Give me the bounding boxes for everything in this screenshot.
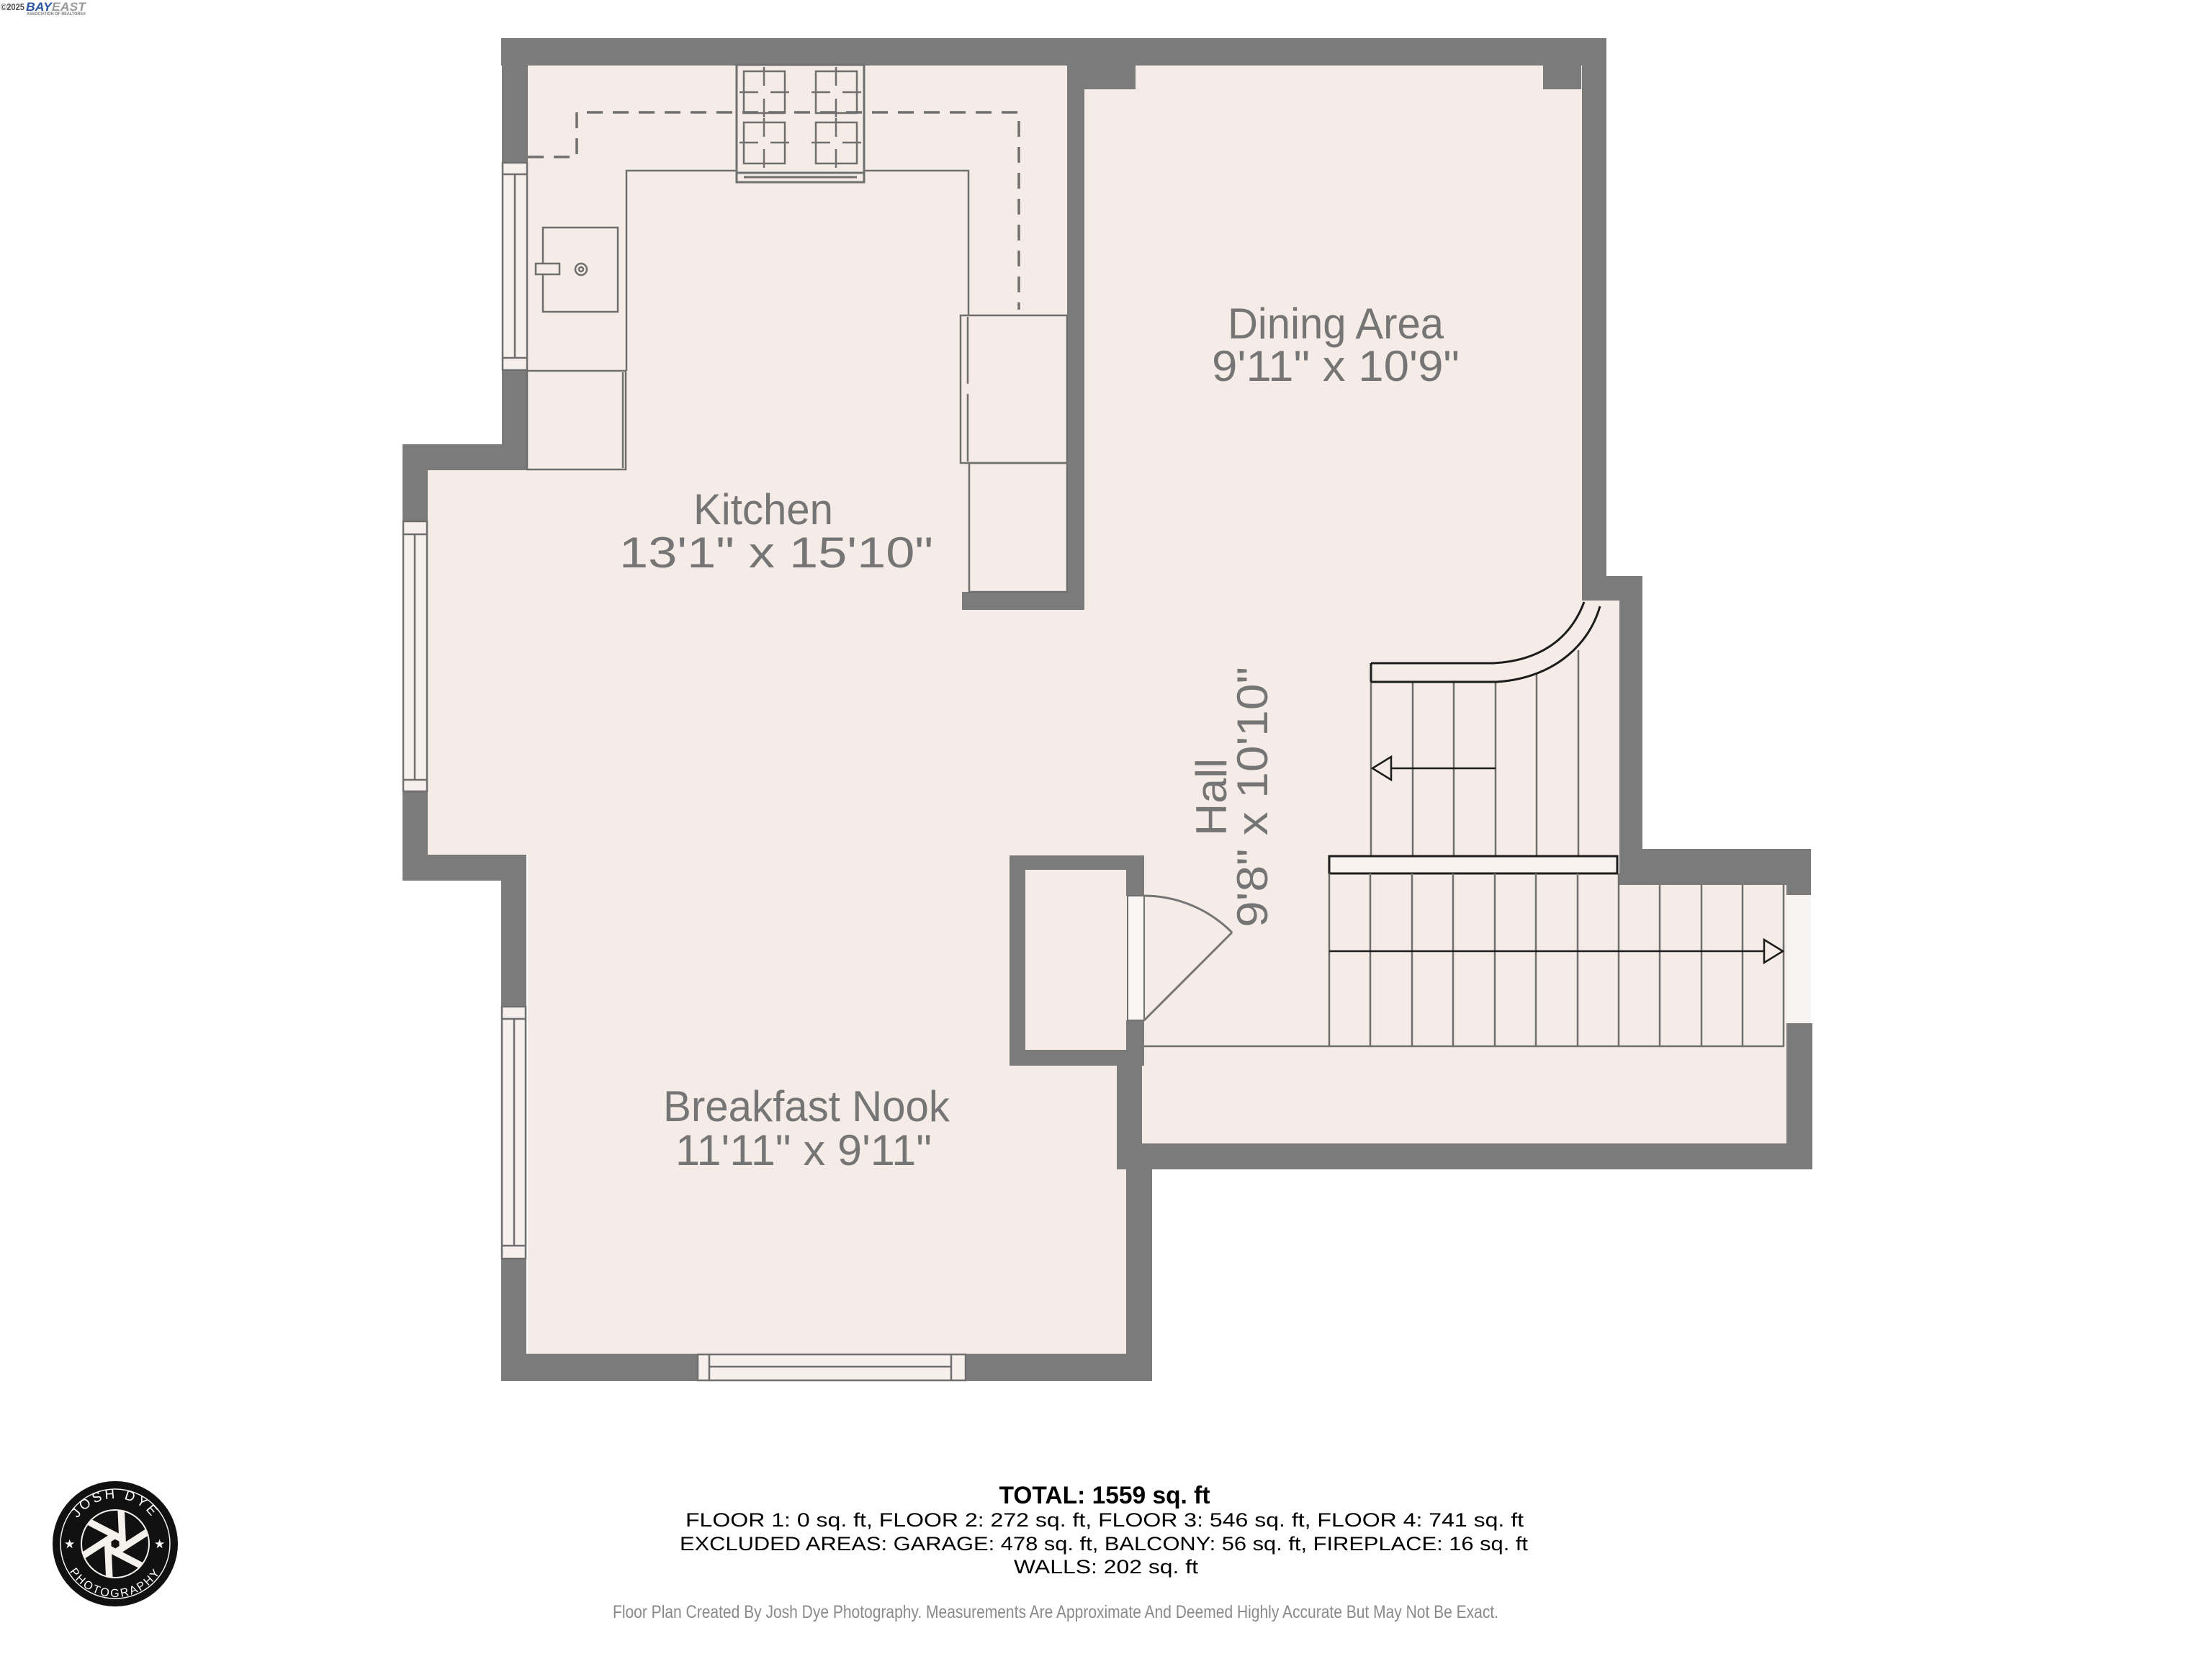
svg-text:11'11" x 9'11": 11'11" x 9'11" xyxy=(675,1126,932,1174)
svg-text:Dining Area: Dining Area xyxy=(1228,300,1444,348)
svg-text:Floor Plan Created By Josh Dye: Floor Plan Created By Josh Dye Photograp… xyxy=(613,1602,1498,1622)
svg-text:13'1" x 15'10": 13'1" x 15'10" xyxy=(619,529,933,577)
svg-text:9'8" x 10'10": 9'8" x 10'10" xyxy=(1228,667,1277,927)
svg-text:9'11" x 10'9": 9'11" x 10'9" xyxy=(1212,342,1460,390)
svg-text:FLOOR 1: 0 sq. ft, FLOOR 2: 27: FLOOR 1: 0 sq. ft, FLOOR 2: 272 sq. ft, … xyxy=(685,1509,1524,1531)
svg-text:Kitchen: Kitchen xyxy=(693,485,833,534)
svg-text:TOTAL: 1559 sq. ft: TOTAL: 1559 sq. ft xyxy=(999,1482,1210,1509)
svg-text:EXCLUDED AREAS: GARAGE: 478 sq: EXCLUDED AREAS: GARAGE: 478 sq. ft, BALC… xyxy=(680,1533,1529,1555)
svg-text:Breakfast Nook: Breakfast Nook xyxy=(663,1082,950,1130)
svg-text:★: ★ xyxy=(64,1537,75,1551)
svg-text:WALLS: 202 sq. ft: WALLS: 202 sq. ft xyxy=(1014,1556,1199,1578)
svg-text:★: ★ xyxy=(154,1537,165,1551)
svg-text:©2025: ©2025 xyxy=(1,1,24,12)
svg-text:ASSOCIATION OF REALTORS®: ASSOCIATION OF REALTORS® xyxy=(27,12,86,17)
